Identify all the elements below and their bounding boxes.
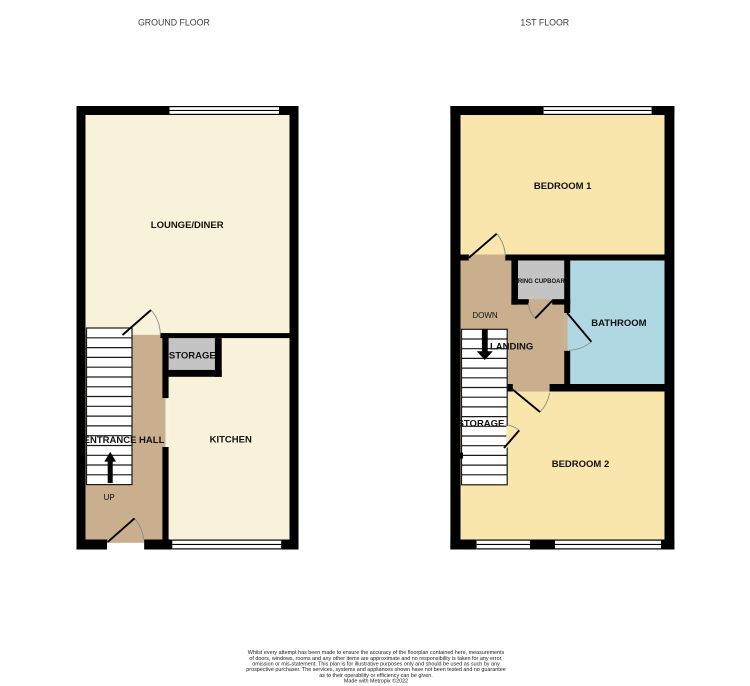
svg-text:BEDROOM 1: BEDROOM 1 (534, 181, 592, 192)
svg-text:1ST FLOOR: 1ST FLOOR (520, 17, 569, 27)
svg-text:KITCHEN: KITCHEN (210, 435, 252, 446)
svg-text:LANDING: LANDING (490, 341, 533, 352)
svg-text:GROUND FLOOR: GROUND FLOOR (138, 17, 210, 27)
svg-text:STORAGE: STORAGE (169, 350, 216, 361)
svg-text:STORAGE: STORAGE (458, 419, 505, 430)
svg-text:BEDROOM 2: BEDROOM 2 (552, 459, 610, 470)
svg-text:ENTRANCE HALL: ENTRANCE HALL (84, 435, 165, 446)
svg-text:BATHROOM: BATHROOM (591, 318, 646, 329)
svg-text:DOWN: DOWN (472, 311, 498, 320)
svg-text:UP: UP (104, 493, 115, 502)
svg-text:LOUNGE/DINER: LOUNGE/DINER (151, 220, 224, 231)
svg-text:Made with Metropix ©2022: Made with Metropix ©2022 (344, 678, 408, 685)
svg-text:AIRING CUPBOARD: AIRING CUPBOARD (512, 279, 570, 285)
